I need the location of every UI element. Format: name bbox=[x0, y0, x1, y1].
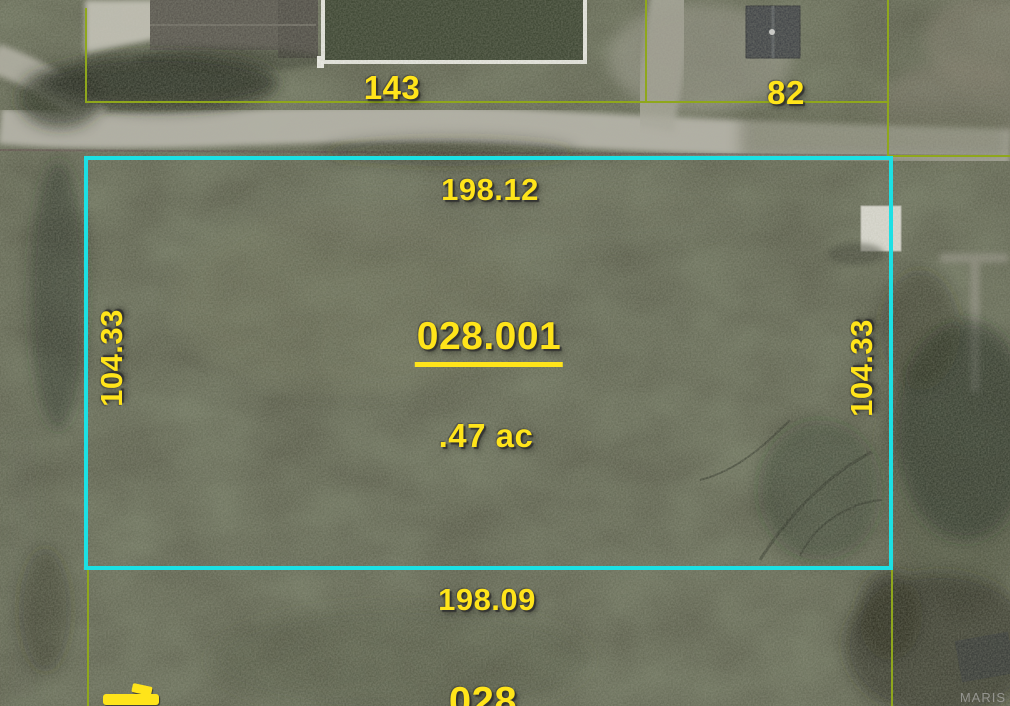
aerial-parcel-map: 143 82 198.12 104.33 104.33 028.001 .47 … bbox=[0, 0, 1010, 706]
parcel-line-sw-vertical bbox=[87, 568, 89, 706]
dimension-left: 104.33 bbox=[94, 309, 130, 407]
parcel-line-north-divider bbox=[645, 0, 647, 103]
dimension-right: 104.33 bbox=[844, 319, 880, 417]
lot-width-label-143: 143 bbox=[364, 69, 421, 107]
dimension-bottom: 198.09 bbox=[438, 582, 536, 618]
survey-marker-bar bbox=[103, 694, 159, 705]
lot-width-label-82: 82 bbox=[767, 74, 805, 112]
parcel-line-se-vertical bbox=[891, 570, 893, 706]
south-parcel-id: 028 bbox=[449, 680, 517, 706]
parcel-line-ne-horizontal bbox=[887, 155, 1010, 157]
dimension-top: 198.12 bbox=[441, 172, 539, 208]
subject-parcel-area: .47 ac bbox=[439, 417, 534, 455]
parcel-line-nw-vertical bbox=[85, 8, 87, 103]
subject-parcel-id-text: 028.001 bbox=[415, 315, 563, 367]
parcel-line-ne-vertical bbox=[887, 0, 889, 157]
maris-watermark: MARIS bbox=[960, 690, 1006, 705]
subject-parcel-id: 028.001 bbox=[415, 315, 563, 359]
